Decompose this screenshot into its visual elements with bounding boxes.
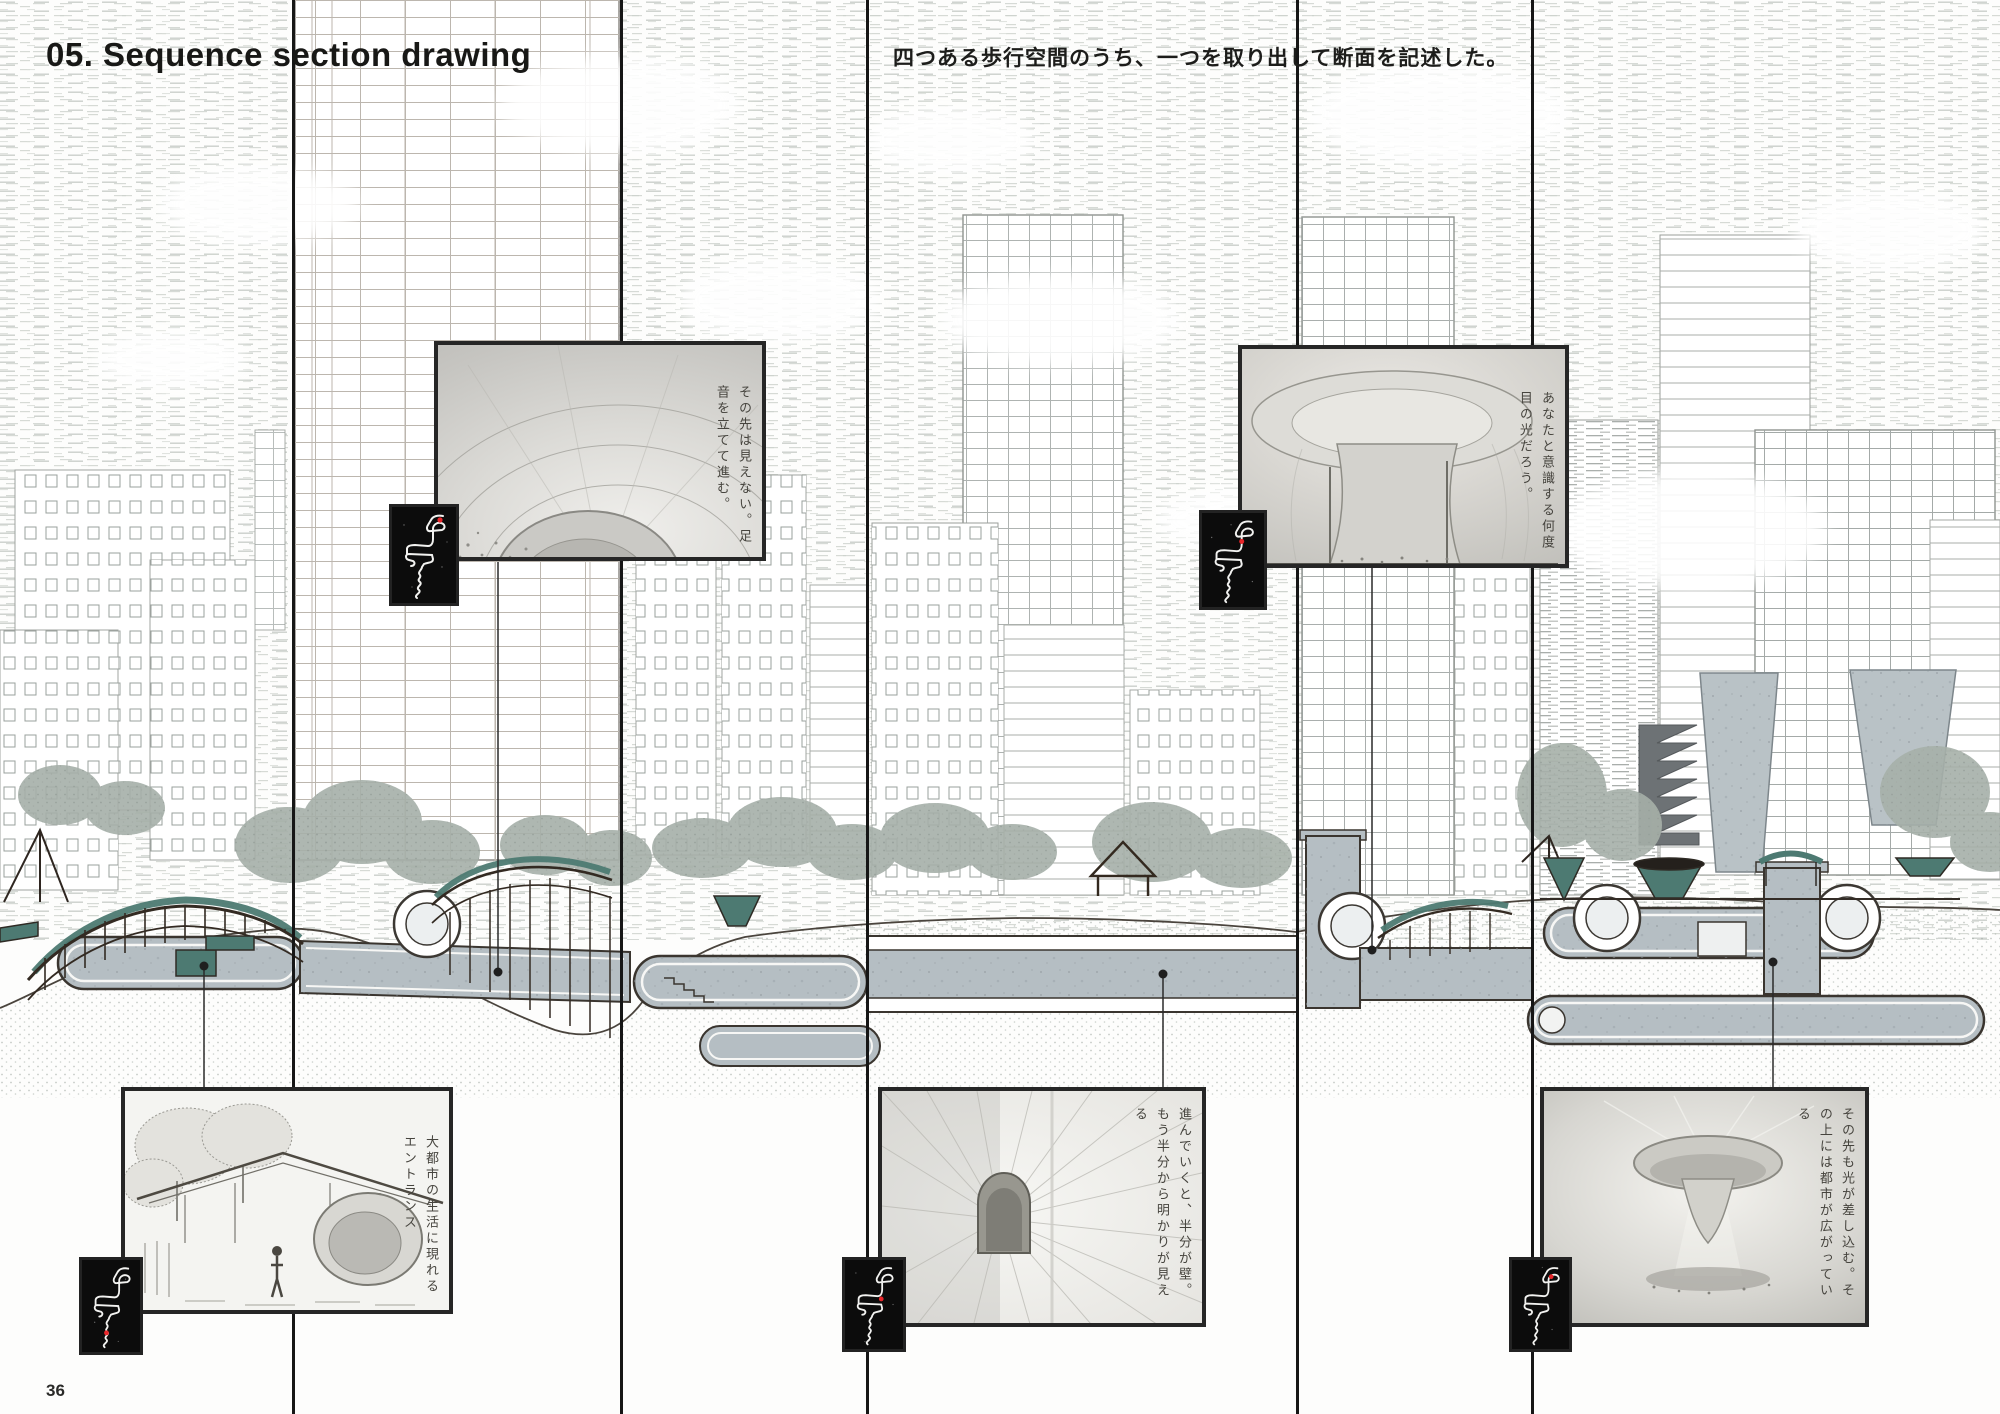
- section-cut-line-3: [866, 0, 869, 1414]
- route-map-thumbnail-4: [842, 1257, 906, 1352]
- inset-cave-light-sketch: あなたと意識する何度目の光だろう。: [1238, 345, 1569, 568]
- page-number: 36: [46, 1381, 65, 1401]
- inset-entrance-sketch: 大都市の生活に現れるエントランス: [121, 1087, 453, 1314]
- position-dot: [437, 517, 442, 522]
- route-map-icon: [845, 1260, 903, 1349]
- route-line: [1216, 521, 1253, 602]
- section-cut-line-2: [620, 0, 623, 1414]
- position-dot: [104, 1330, 109, 1335]
- inset-caption: その先は見えない。足音を立てて進む。: [711, 385, 755, 555]
- inset-caption: その先も光が差し込む。その上には都市が広がっている: [1792, 1107, 1858, 1312]
- inset-light-above-sketch: その先も光が差し込む。その上には都市が広がっている: [1540, 1087, 1869, 1327]
- route-line: [858, 1268, 893, 1344]
- page-title: 05. Sequence section drawing: [46, 36, 531, 74]
- route-map-thumbnail-3: [79, 1257, 143, 1355]
- inset-tunnel-entrance-sketch: その先は見えない。足音を立てて進む。: [434, 341, 766, 561]
- section-cut-line-4: [1296, 0, 1299, 1414]
- route-map-icon: [82, 1260, 140, 1352]
- position-dot: [1239, 539, 1244, 544]
- inset-caption: 進んでいくと、半分が壁。もう半分から明かりが見える: [1129, 1107, 1195, 1312]
- route-map-thumbnail-1: [389, 504, 459, 606]
- inset-caption: 大都市の生活に現れるエントランス: [398, 1135, 442, 1310]
- route-map-icon: [1202, 513, 1264, 607]
- route-line: [406, 516, 445, 598]
- route-map-icon: [1512, 1260, 1569, 1349]
- inset-half-wall-sketch: 進んでいくと、半分が壁。もう半分から明かりが見える: [878, 1087, 1206, 1327]
- inset-caption: あなたと意識する何度目の光だろう。: [1514, 391, 1558, 563]
- page-note: 四つある歩行空間のうち、一つを取り出して断面を記述した。: [893, 42, 1508, 72]
- route-map-thumbnail-2: [1199, 510, 1267, 610]
- route-map-icon: [392, 507, 456, 603]
- route-line: [95, 1268, 130, 1347]
- route-map-thumbnail-5: [1509, 1257, 1572, 1352]
- position-dot: [879, 1297, 884, 1302]
- section-cut-line-5: [1531, 0, 1534, 1414]
- position-dot: [1549, 1274, 1554, 1279]
- portfolio-page: その先は見えない。足音を立てて進む。 あなたと意識する何度目の光だろう。: [0, 0, 2000, 1414]
- route-line: [1524, 1268, 1558, 1344]
